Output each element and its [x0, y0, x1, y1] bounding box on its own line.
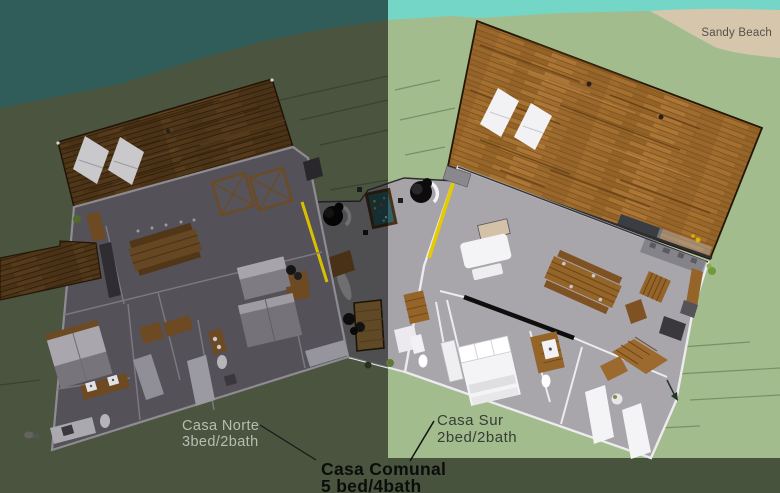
svg-text:Casa Sur: Casa Sur	[437, 412, 504, 429]
svg-text:5 bed/4bath: 5 bed/4bath	[321, 476, 422, 493]
svg-text:Sandy Beach: Sandy Beach	[701, 27, 772, 39]
svg-text:Casa Norte: Casa Norte	[182, 418, 259, 434]
svg-text:3bed/2bath: 3bed/2bath	[182, 434, 259, 450]
svg-text:2bed/2bath: 2bed/2bath	[437, 429, 517, 446]
